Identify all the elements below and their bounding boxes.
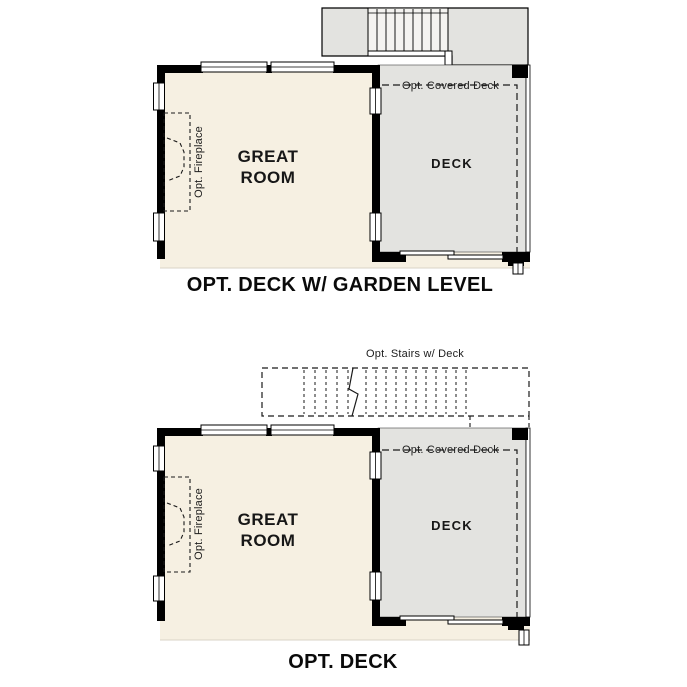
floorplan-page: { "diagram_title": "Great Room Deck Opti… — [0, 0, 687, 687]
great-room-label: GREAT ROOM — [227, 509, 309, 551]
covered-deck-label: Opt. Covered Deck — [383, 444, 518, 456]
deck-label: DECK — [412, 518, 492, 533]
fireplace-label: Opt. Fireplace — [191, 475, 207, 573]
opt-stairs-label: Opt. Stairs w/ Deck — [350, 348, 480, 360]
plan-caption-opt-deck: OPT. DECK — [150, 651, 536, 674]
floorplan-diagram: Opt. Covered Deck GREAT ROOM DECK Opt. F… — [0, 0, 687, 687]
plan-opt-deck-labels: Opt. Stairs w/ Deck Opt. Covered Deck GR… — [0, 0, 687, 687]
fireplace-label-text: Opt. Fireplace — [193, 488, 205, 560]
